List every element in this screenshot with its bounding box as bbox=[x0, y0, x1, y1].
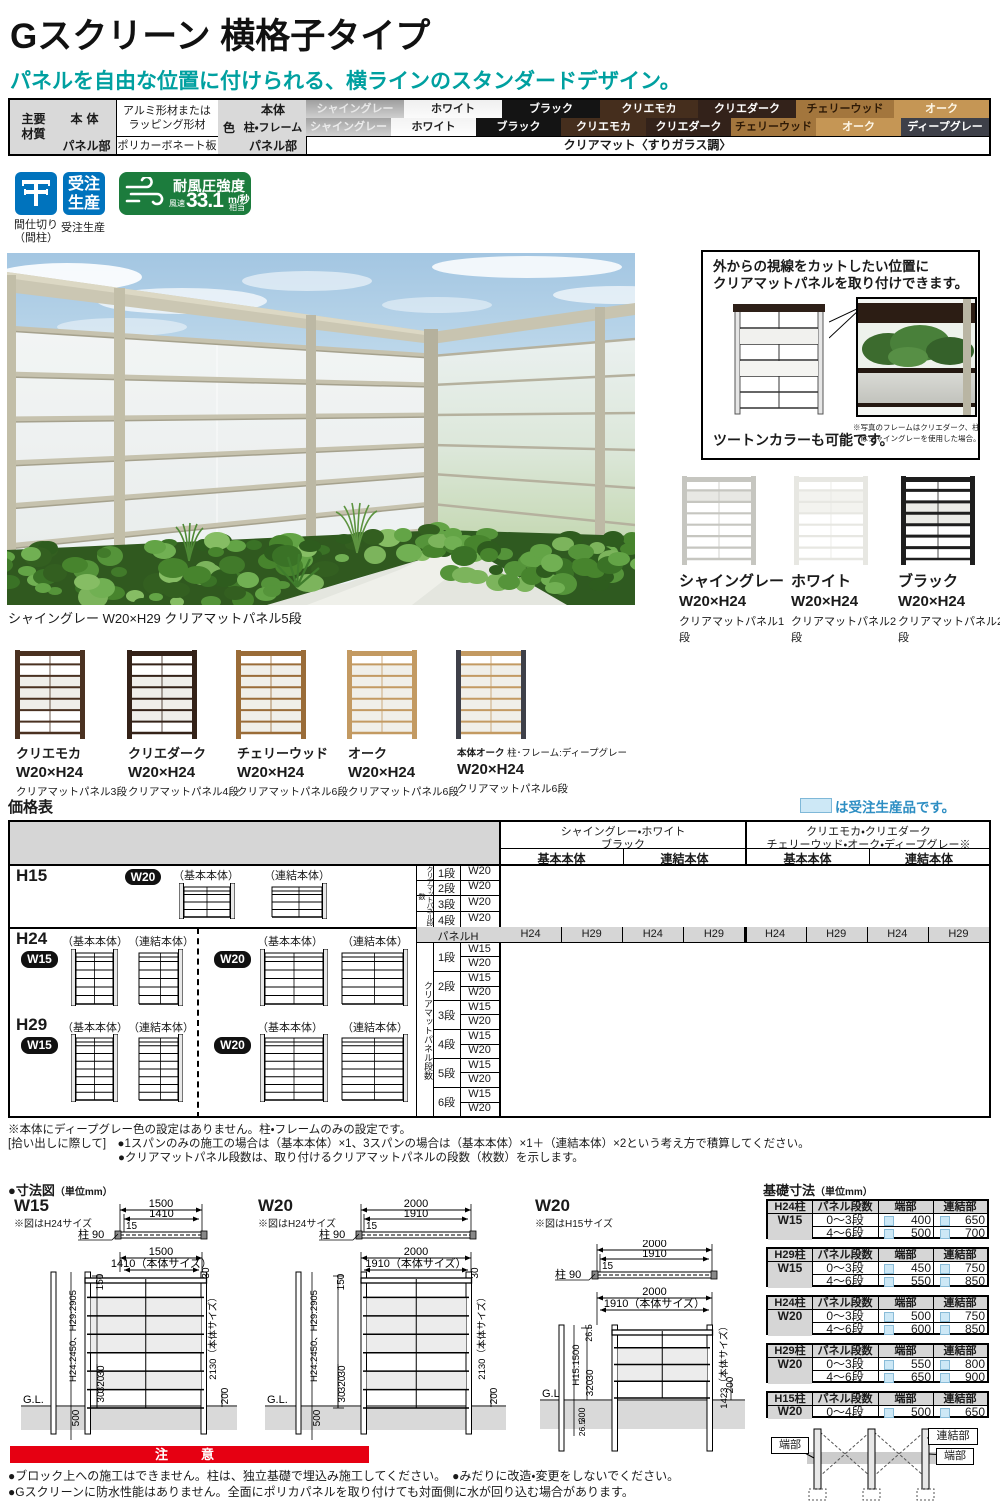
svg-text:H24:2450、H29:2905: H24:2450、H29:2905 bbox=[68, 1290, 79, 1382]
svg-text:320: 320 bbox=[337, 1375, 348, 1392]
svg-text:200: 200 bbox=[725, 1376, 736, 1393]
svg-text:2000: 2000 bbox=[642, 1286, 666, 1298]
svg-text:1410（本体サイズ）: 1410（本体サイズ） bbox=[111, 1256, 212, 1270]
svg-text:500: 500 bbox=[312, 1409, 323, 1426]
svg-text:1910（本体サイズ）: 1910（本体サイズ） bbox=[604, 1296, 705, 1310]
svg-text:30: 30 bbox=[470, 1267, 481, 1279]
svg-text:1410: 1410 bbox=[149, 1208, 173, 1220]
svg-text:26.5: 26.5 bbox=[577, 1419, 587, 1436]
svg-text:15: 15 bbox=[126, 1221, 138, 1232]
svg-text:G.L.: G.L. bbox=[267, 1394, 288, 1406]
svg-text:2130（本体サイズ）: 2130（本体サイズ） bbox=[476, 1292, 488, 1379]
svg-text:2000: 2000 bbox=[404, 1246, 428, 1258]
svg-text:H15:1500: H15:1500 bbox=[571, 1344, 582, 1385]
svg-text:H24:2450、H29:2905: H24:2450、H29:2905 bbox=[309, 1290, 320, 1382]
svg-text:320: 320 bbox=[96, 1375, 107, 1392]
svg-text:30: 30 bbox=[96, 1365, 107, 1377]
svg-text:1910: 1910 bbox=[404, 1208, 428, 1220]
svg-text:15: 15 bbox=[602, 1261, 614, 1272]
svg-text:1500: 1500 bbox=[149, 1246, 173, 1258]
svg-text:26.5: 26.5 bbox=[584, 1324, 594, 1342]
svg-text:柱 90: 柱 90 bbox=[555, 1267, 581, 1281]
svg-text:30: 30 bbox=[96, 1391, 107, 1403]
svg-text:15: 15 bbox=[366, 1221, 378, 1232]
svg-text:2130（本体サイズ）: 2130（本体サイズ） bbox=[207, 1292, 219, 1379]
svg-text:30: 30 bbox=[337, 1391, 348, 1403]
svg-text:1910（本体サイズ）: 1910（本体サイズ） bbox=[365, 1256, 466, 1270]
svg-text:1910: 1910 bbox=[642, 1248, 666, 1260]
svg-text:柱 90: 柱 90 bbox=[78, 1227, 104, 1241]
svg-text:1423（本体サイズ）: 1423（本体サイズ） bbox=[718, 1321, 730, 1408]
svg-text:500: 500 bbox=[71, 1409, 82, 1426]
svg-text:30: 30 bbox=[337, 1365, 348, 1377]
svg-text:30: 30 bbox=[201, 1267, 212, 1279]
svg-text:G.L.: G.L. bbox=[23, 1394, 44, 1406]
svg-text:柱 90: 柱 90 bbox=[319, 1227, 345, 1241]
